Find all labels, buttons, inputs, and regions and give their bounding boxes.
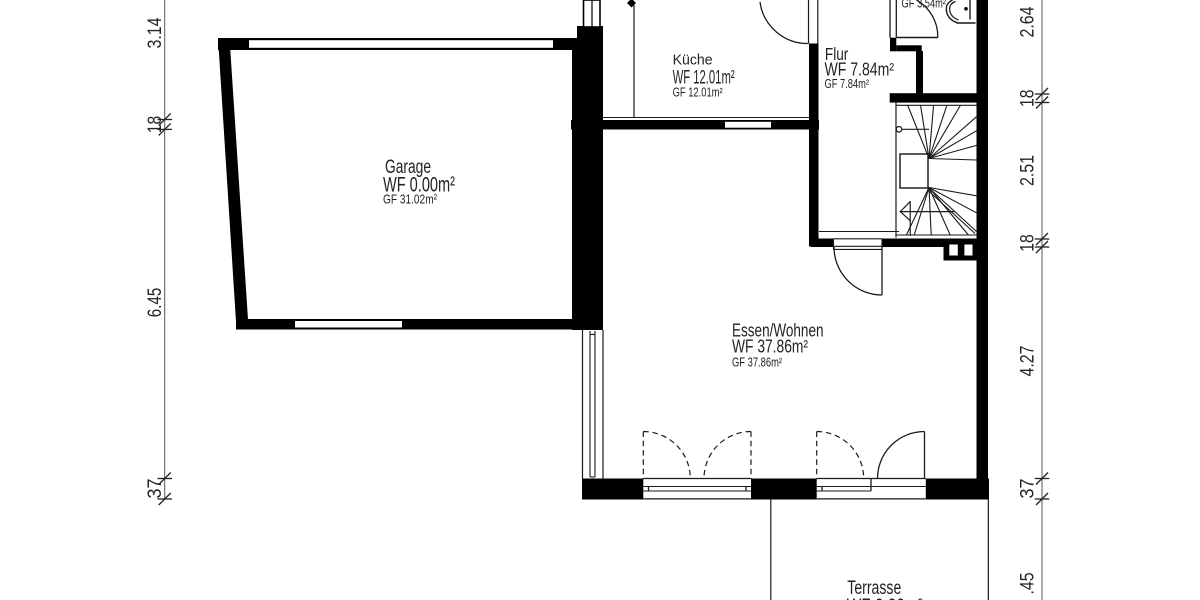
svg-text:6.45: 6.45 [144,288,166,318]
svg-text:WF 0.00m²: WF 0.00m² [847,595,923,600]
svg-text:2.51: 2.51 [1017,155,1039,186]
svg-text:GF 12.01m²: GF 12.01m² [673,84,723,99]
svg-text:18: 18 [1017,89,1039,107]
svg-text:GF 37.86m²: GF 37.86m² [732,354,782,369]
svg-text:GF 7.84m²: GF 7.84m² [825,76,870,91]
svg-text:18: 18 [1017,234,1039,252]
svg-text:2.64: 2.64 [1017,6,1039,37]
svg-text:3.14: 3.14 [144,17,166,48]
svg-text:37: 37 [1017,479,1039,499]
svg-text:4.27: 4.27 [1017,346,1039,377]
svg-text:37: 37 [144,479,166,499]
svg-text:18: 18 [144,116,166,134]
svg-text:.45: .45 [1017,572,1039,594]
svg-text:GF 31.02m²: GF 31.02m² [383,192,437,207]
